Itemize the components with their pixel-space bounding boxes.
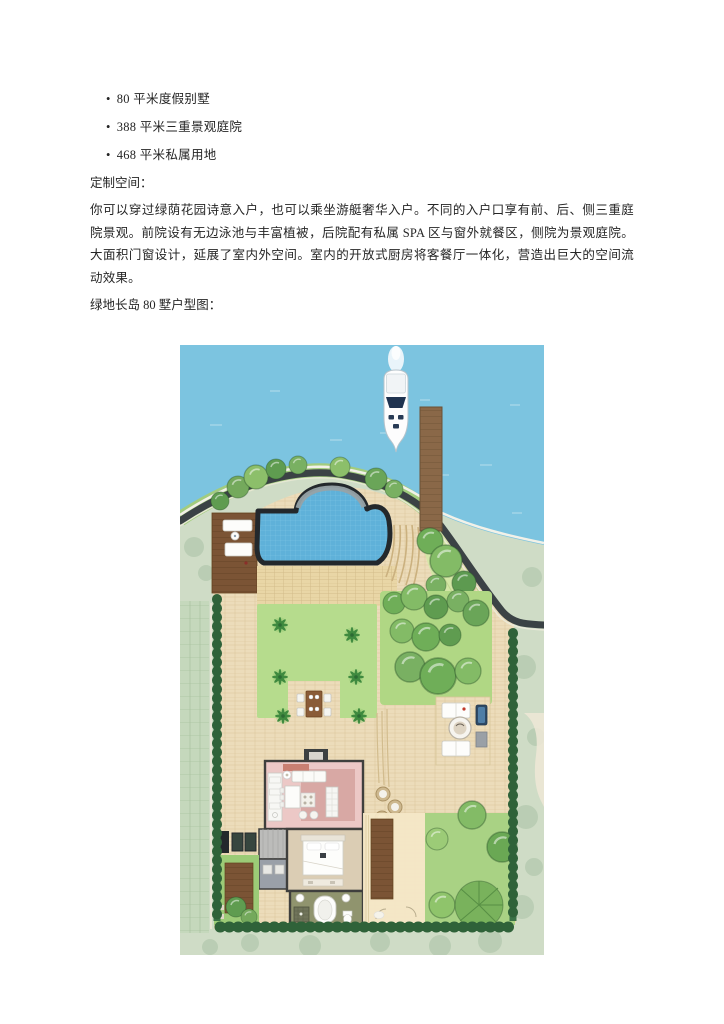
bullet-text: 468 平米私属用地 [117, 148, 217, 162]
figure-caption: 绿地长岛 80 墅户型图： [90, 298, 634, 312]
side-garden [380, 584, 492, 705]
list-item: •388 平米三重景观庭院 [106, 120, 634, 134]
article-body: •80 平米度假别墅 •388 平米三重景观庭院 •468 平米私属用地 定制空… [0, 0, 724, 955]
bullet-icon: • [106, 120, 111, 134]
list-item: •80 平米度假别墅 [106, 92, 634, 106]
pool-deck [212, 513, 257, 593]
body-paragraph: 你可以穿过绿荫花园诗意入户，也可以乘坐游艇奢华入户。不同的入户口享有前、后、侧三… [90, 199, 634, 289]
patio-deck [371, 819, 393, 899]
bullet-icon: • [106, 92, 111, 106]
bedroom [287, 829, 363, 891]
southeast-garden [425, 801, 517, 929]
coffee-table [301, 793, 315, 807]
bathroom [290, 891, 363, 926]
kitchen-table [280, 786, 300, 808]
back-patio [363, 813, 425, 926]
feature-bullet-list: •80 平米度假别墅 •388 平米三重景观庭院 •468 平米私属用地 [90, 92, 634, 162]
site-plan-figure [180, 345, 544, 955]
document-page: •80 平米度假别墅 •388 平米三重景观庭院 •468 平米私属用地 定制空… [0, 0, 724, 1024]
bullet-text: 388 平米三重景观庭院 [117, 120, 242, 134]
section-heading: 定制空间： [90, 176, 634, 190]
boat-windshield [386, 397, 406, 408]
bullet-text: 80 平米度假别墅 [117, 92, 210, 106]
equipment-box [476, 732, 487, 747]
left-field [180, 601, 211, 933]
sink [342, 894, 350, 902]
spa-patio [436, 697, 490, 765]
front-garden [257, 604, 377, 725]
boat-dock [420, 407, 442, 531]
bullet-icon: • [106, 148, 111, 162]
utility-rooms [259, 829, 287, 889]
site-plan-image [180, 345, 544, 955]
sofa [292, 771, 326, 782]
list-item: •468 平米私属用地 [106, 148, 634, 162]
sink [296, 894, 304, 902]
living-room [265, 749, 363, 829]
